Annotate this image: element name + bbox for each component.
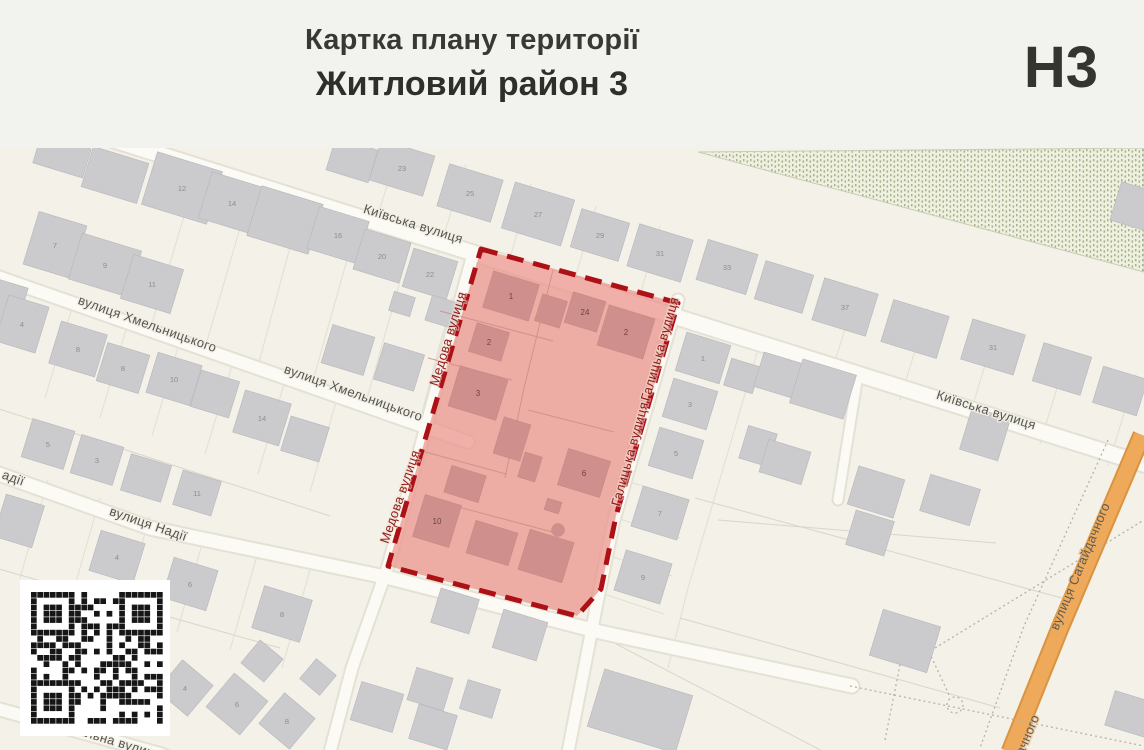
qr-module <box>157 624 163 630</box>
qr-module <box>144 699 150 705</box>
qr-module <box>44 605 50 611</box>
qr-module <box>144 630 150 636</box>
qr-module <box>88 693 94 699</box>
qr-module <box>94 598 100 604</box>
qr-module <box>31 668 37 674</box>
territory-plan-card: Картка плану території Житловий район 3 … <box>0 0 1144 750</box>
qr-module <box>126 693 132 699</box>
qr-module <box>138 617 144 623</box>
building-number: 7 <box>53 241 57 250</box>
district-title: Житловий район 3 <box>0 65 944 104</box>
qr-module <box>31 624 37 630</box>
qr-module <box>144 712 150 718</box>
building-number: 16 <box>334 231 342 240</box>
qr-module <box>50 680 56 686</box>
building-number: 9 <box>641 573 645 582</box>
zone-building-number: 2 <box>487 338 492 347</box>
qr-module <box>100 693 106 699</box>
qr-module <box>107 693 113 699</box>
qr-module <box>126 699 132 705</box>
qr-module <box>81 592 87 598</box>
qr-module <box>63 668 69 674</box>
zone-building-number: 3 <box>476 389 481 398</box>
qr-module <box>144 617 150 623</box>
qr-module <box>94 687 100 693</box>
qr-module <box>126 668 132 674</box>
qr-module <box>88 636 94 642</box>
qr-module <box>37 718 43 724</box>
qr-module <box>31 680 37 686</box>
qr-module <box>132 680 138 686</box>
zone-building-round <box>552 524 565 537</box>
qr-code <box>20 580 170 736</box>
qr-module <box>31 674 37 680</box>
qr-module <box>31 699 37 705</box>
building-number: 25 <box>466 189 474 198</box>
qr-module <box>37 636 43 642</box>
qr-module <box>94 630 100 636</box>
qr-module <box>31 598 37 604</box>
qr-module <box>157 661 163 667</box>
plan-map: 7911121416202223252729313337314881014531… <box>0 148 1144 750</box>
zone-building-number: 1 <box>509 292 514 301</box>
qr-module <box>88 624 94 630</box>
qr-module <box>31 611 37 617</box>
qr-module <box>138 680 144 686</box>
qr-module <box>37 592 43 598</box>
qr-module <box>113 674 119 680</box>
zone-code-label: Н3 <box>1024 34 1098 101</box>
qr-module <box>126 680 132 686</box>
qr-module <box>100 718 106 724</box>
building-number: 37 <box>841 303 849 312</box>
qr-module <box>69 655 75 661</box>
qr-module <box>107 630 113 636</box>
qr-module <box>157 611 163 617</box>
qr-module <box>94 649 100 655</box>
qr-module <box>132 655 138 661</box>
qr-module <box>50 649 56 655</box>
qr-module <box>107 680 113 686</box>
qr-module <box>69 693 75 699</box>
qr-module <box>81 668 87 674</box>
qr-module <box>126 661 132 667</box>
qr-module <box>56 592 62 598</box>
qr-module <box>144 642 150 648</box>
building-number: 11 <box>193 489 201 498</box>
zone-building-number: 24 <box>581 308 590 317</box>
zone-building-number: 2 <box>624 328 629 337</box>
qr-module <box>132 605 138 611</box>
qr-module <box>144 592 150 598</box>
qr-module <box>138 699 144 705</box>
qr-module <box>151 630 157 636</box>
qr-module <box>119 661 125 667</box>
qr-module <box>132 699 138 705</box>
qr-module <box>44 630 50 636</box>
building-number: 8 <box>121 364 125 373</box>
qr-module <box>81 649 87 655</box>
qr-module <box>119 592 125 598</box>
qr-module <box>31 617 37 623</box>
qr-module <box>113 693 119 699</box>
qr-module <box>69 605 75 611</box>
qr-module <box>31 630 37 636</box>
building-number: 5 <box>674 449 678 458</box>
qr-module <box>31 642 37 648</box>
qr-module <box>132 687 138 693</box>
qr-module <box>75 693 81 699</box>
qr-module <box>119 624 125 630</box>
building-number: 4 <box>20 320 24 329</box>
qr-module <box>94 624 100 630</box>
building-number: 1 <box>701 354 705 363</box>
qr-module <box>144 687 150 693</box>
qr-module <box>31 705 37 711</box>
qr-module <box>100 598 106 604</box>
qr-module <box>81 636 87 642</box>
qr-module <box>50 617 56 623</box>
building-number: 6 <box>235 700 239 709</box>
building-number: 14 <box>258 414 266 423</box>
qr-module <box>138 630 144 636</box>
qr-module <box>31 592 37 598</box>
qr-module <box>31 605 37 611</box>
building-number: 11 <box>148 280 156 289</box>
qr-module <box>94 718 100 724</box>
qr-module <box>126 718 132 724</box>
building-number: 7 <box>658 509 662 518</box>
qr-module <box>63 680 69 686</box>
qr-module <box>63 592 69 598</box>
building-number: 6 <box>188 580 192 589</box>
qr-module <box>88 605 94 611</box>
qr-module <box>44 680 50 686</box>
qr-module <box>44 661 50 667</box>
qr-module <box>37 680 43 686</box>
card-header: Картка плану території Житловий район 3 … <box>0 0 1144 148</box>
qr-module <box>126 636 132 642</box>
qr-module <box>138 611 144 617</box>
building-number: 20 <box>378 252 386 261</box>
qr-module <box>31 687 37 693</box>
qr-module <box>56 680 62 686</box>
qr-module <box>75 649 81 655</box>
qr-module <box>113 687 119 693</box>
building-number: 31 <box>989 343 997 352</box>
qr-module <box>138 605 144 611</box>
qr-module <box>107 649 113 655</box>
qr-module <box>157 680 163 686</box>
qr-module <box>37 642 43 648</box>
qr-module <box>69 712 75 718</box>
qr-module <box>157 693 163 699</box>
qr-module <box>107 687 113 693</box>
qr-module <box>69 617 75 623</box>
qr-module <box>119 712 125 718</box>
qr-module <box>44 699 50 705</box>
qr-module <box>132 617 138 623</box>
qr-module <box>94 674 100 680</box>
building-number: 12 <box>178 184 186 193</box>
qr-module <box>119 718 125 724</box>
qr-module <box>63 636 69 642</box>
qr-module <box>56 718 62 724</box>
qr-module <box>119 605 125 611</box>
qr-module <box>50 605 56 611</box>
card-titles: Картка плану території Житловий район 3 <box>0 24 944 104</box>
qr-module <box>69 718 75 724</box>
qr-module <box>44 642 50 648</box>
qr-module <box>119 693 125 699</box>
qr-module <box>69 630 75 636</box>
qr-module <box>119 655 125 661</box>
qr-module <box>44 611 50 617</box>
qr-module <box>138 642 144 648</box>
qr-module <box>119 642 125 648</box>
qr-module <box>56 699 62 705</box>
qr-module <box>44 693 50 699</box>
qr-module <box>113 718 119 724</box>
qr-module <box>75 699 81 705</box>
qr-module <box>119 687 125 693</box>
qr-module <box>100 661 106 667</box>
qr-module <box>31 712 37 718</box>
building-number: 23 <box>398 164 406 173</box>
qr-module <box>44 592 50 598</box>
qr-module <box>75 642 81 648</box>
qr-module <box>157 674 163 680</box>
qr-module <box>138 636 144 642</box>
qr-module <box>119 598 125 604</box>
qr-module <box>69 624 75 630</box>
qr-module <box>144 611 150 617</box>
qr-module <box>151 674 157 680</box>
qr-module <box>56 611 62 617</box>
qr-module <box>157 649 163 655</box>
qr-module <box>126 592 132 598</box>
building-number: 5 <box>46 440 50 449</box>
qr-module <box>157 687 163 693</box>
qr-module <box>157 642 163 648</box>
qr-module <box>119 611 125 617</box>
qr-module <box>69 699 75 705</box>
qr-module <box>94 611 100 617</box>
qr-module <box>50 699 56 705</box>
qr-module <box>31 693 37 699</box>
building-number: 10 <box>170 375 178 384</box>
building-number: 3 <box>688 400 692 409</box>
qr-module <box>132 611 138 617</box>
building-number: 8 <box>280 610 284 619</box>
qr-module <box>63 661 69 667</box>
qr-module <box>157 592 163 598</box>
qr-module <box>126 630 132 636</box>
qr-module <box>107 624 113 630</box>
qr-module <box>75 655 81 661</box>
qr-module <box>50 611 56 617</box>
building-number: 8 <box>76 345 80 354</box>
qr-module <box>75 611 81 617</box>
qr-module <box>69 680 75 686</box>
qr-module <box>157 598 163 604</box>
qr-module <box>37 655 43 661</box>
qr-module <box>75 680 81 686</box>
map-canvas: 7911121416202223252729313337314881014531… <box>0 148 1144 750</box>
qr-module <box>100 699 106 705</box>
building-number: 31 <box>656 249 664 258</box>
qr-module <box>113 661 119 667</box>
qr-module <box>157 630 163 636</box>
qr-module <box>88 718 94 724</box>
qr-module <box>107 642 113 648</box>
qr-module <box>56 655 62 661</box>
building-number: 8 <box>285 717 289 726</box>
qr-module <box>50 655 56 661</box>
qr-module <box>132 630 138 636</box>
building-number: 29 <box>596 231 604 240</box>
qr-module <box>37 630 43 636</box>
qr-module <box>144 674 150 680</box>
qr-module <box>132 592 138 598</box>
qr-module <box>126 649 132 655</box>
qr-module <box>157 718 163 724</box>
qr-module <box>151 649 157 655</box>
qr-module <box>100 668 106 674</box>
qr-module <box>44 718 50 724</box>
qr-module <box>138 592 144 598</box>
qr-module <box>157 712 163 718</box>
qr-module <box>113 655 119 661</box>
qr-module <box>132 718 138 724</box>
qr-module <box>81 687 87 693</box>
building-number: 27 <box>534 210 542 219</box>
card-title: Картка плану території <box>0 24 944 57</box>
qr-module <box>69 705 75 711</box>
qr-module <box>144 605 150 611</box>
qr-module <box>113 624 119 630</box>
qr-module <box>56 649 62 655</box>
building-number: 4 <box>115 553 119 562</box>
qr-module <box>132 674 138 680</box>
qr-module <box>31 649 37 655</box>
qr-module <box>56 693 62 699</box>
qr-module <box>151 592 157 598</box>
qr-module <box>75 661 81 667</box>
qr-module <box>157 605 163 611</box>
qr-module <box>75 617 81 623</box>
building-number: 33 <box>723 263 731 272</box>
qr-module <box>107 661 113 667</box>
qr-module <box>50 693 56 699</box>
qr-module <box>56 617 62 623</box>
qr-module <box>113 668 119 674</box>
qr-module <box>44 705 50 711</box>
qr-module <box>56 636 62 642</box>
building-number: 3 <box>95 456 99 465</box>
qr-module <box>56 705 62 711</box>
qr-module <box>144 649 150 655</box>
qr-module <box>157 617 163 623</box>
qr-module <box>69 642 75 648</box>
qr-module <box>44 674 50 680</box>
building-number: 14 <box>228 199 236 208</box>
qr-module <box>81 630 87 636</box>
qr-module <box>100 680 106 686</box>
qr-module <box>113 598 119 604</box>
qr-module <box>69 611 75 617</box>
qr-module <box>50 630 56 636</box>
qr-module <box>75 605 81 611</box>
qr-module <box>56 605 62 611</box>
qr-module <box>107 636 113 642</box>
qr-module <box>119 680 125 686</box>
qr-module <box>56 630 62 636</box>
qr-module <box>132 712 138 718</box>
qr-module <box>69 592 75 598</box>
qr-module <box>81 624 87 630</box>
qr-module <box>151 687 157 693</box>
zone-building-number: 6 <box>582 469 587 478</box>
qr-module <box>81 605 87 611</box>
zone-building-number: 10 <box>433 517 442 526</box>
building-number: 9 <box>103 261 107 270</box>
qr-module <box>50 718 56 724</box>
qr-module <box>69 598 75 604</box>
qr-module <box>31 718 37 724</box>
qr-module <box>119 630 125 636</box>
qr-module <box>107 611 113 617</box>
qr-module <box>132 668 138 674</box>
qr-module <box>119 617 125 623</box>
qr-module <box>50 705 56 711</box>
qr-module <box>81 617 87 623</box>
building-number: 4 <box>183 684 187 693</box>
qr-module <box>69 668 75 674</box>
qr-module <box>63 642 69 648</box>
qr-module <box>44 655 50 661</box>
qr-module <box>44 617 50 623</box>
qr-module <box>119 699 125 705</box>
qr-module <box>63 674 69 680</box>
qr-module <box>132 649 138 655</box>
qr-module <box>81 598 87 604</box>
qr-module <box>144 636 150 642</box>
qr-module <box>69 687 75 693</box>
qr-module <box>50 592 56 598</box>
building-number: 22 <box>426 270 434 279</box>
qr-module <box>63 718 69 724</box>
qr-module <box>63 630 69 636</box>
qr-module <box>144 661 150 667</box>
qr-module <box>50 642 56 648</box>
qr-module <box>157 705 163 711</box>
qr-module <box>94 668 100 674</box>
qr-module <box>100 705 106 711</box>
